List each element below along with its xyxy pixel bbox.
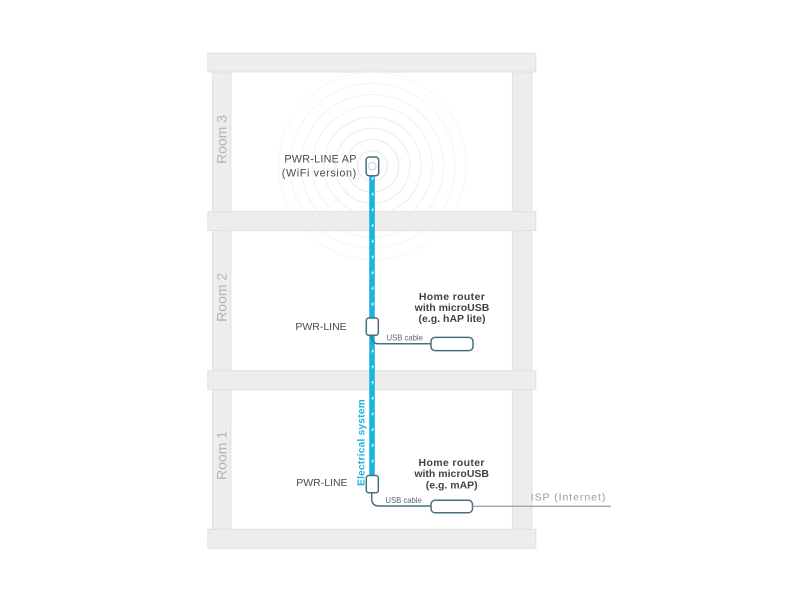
svg-text:USB cable: USB cable xyxy=(387,334,423,343)
svg-text:PWR-LINE AP: PWR-LINE AP xyxy=(284,154,356,166)
svg-text:USB cable: USB cable xyxy=(385,496,421,505)
svg-text:Room 3: Room 3 xyxy=(214,115,230,164)
svg-text:PWR-LINE: PWR-LINE xyxy=(295,321,346,333)
svg-text:(e.g. mAP): (e.g. mAP) xyxy=(426,479,478,491)
svg-text:ISP (Internet): ISP (Internet) xyxy=(531,492,607,504)
svg-text:Electrical system: Electrical system xyxy=(357,399,368,486)
svg-text:Room 1: Room 1 xyxy=(214,431,230,480)
svg-text:Room 2: Room 2 xyxy=(214,273,230,322)
svg-text:PWR-LINE: PWR-LINE xyxy=(296,477,347,489)
svg-text:(e.g. hAP lite): (e.g. hAP lite) xyxy=(419,313,486,325)
svg-text:(WiFi version): (WiFi version) xyxy=(282,168,357,180)
